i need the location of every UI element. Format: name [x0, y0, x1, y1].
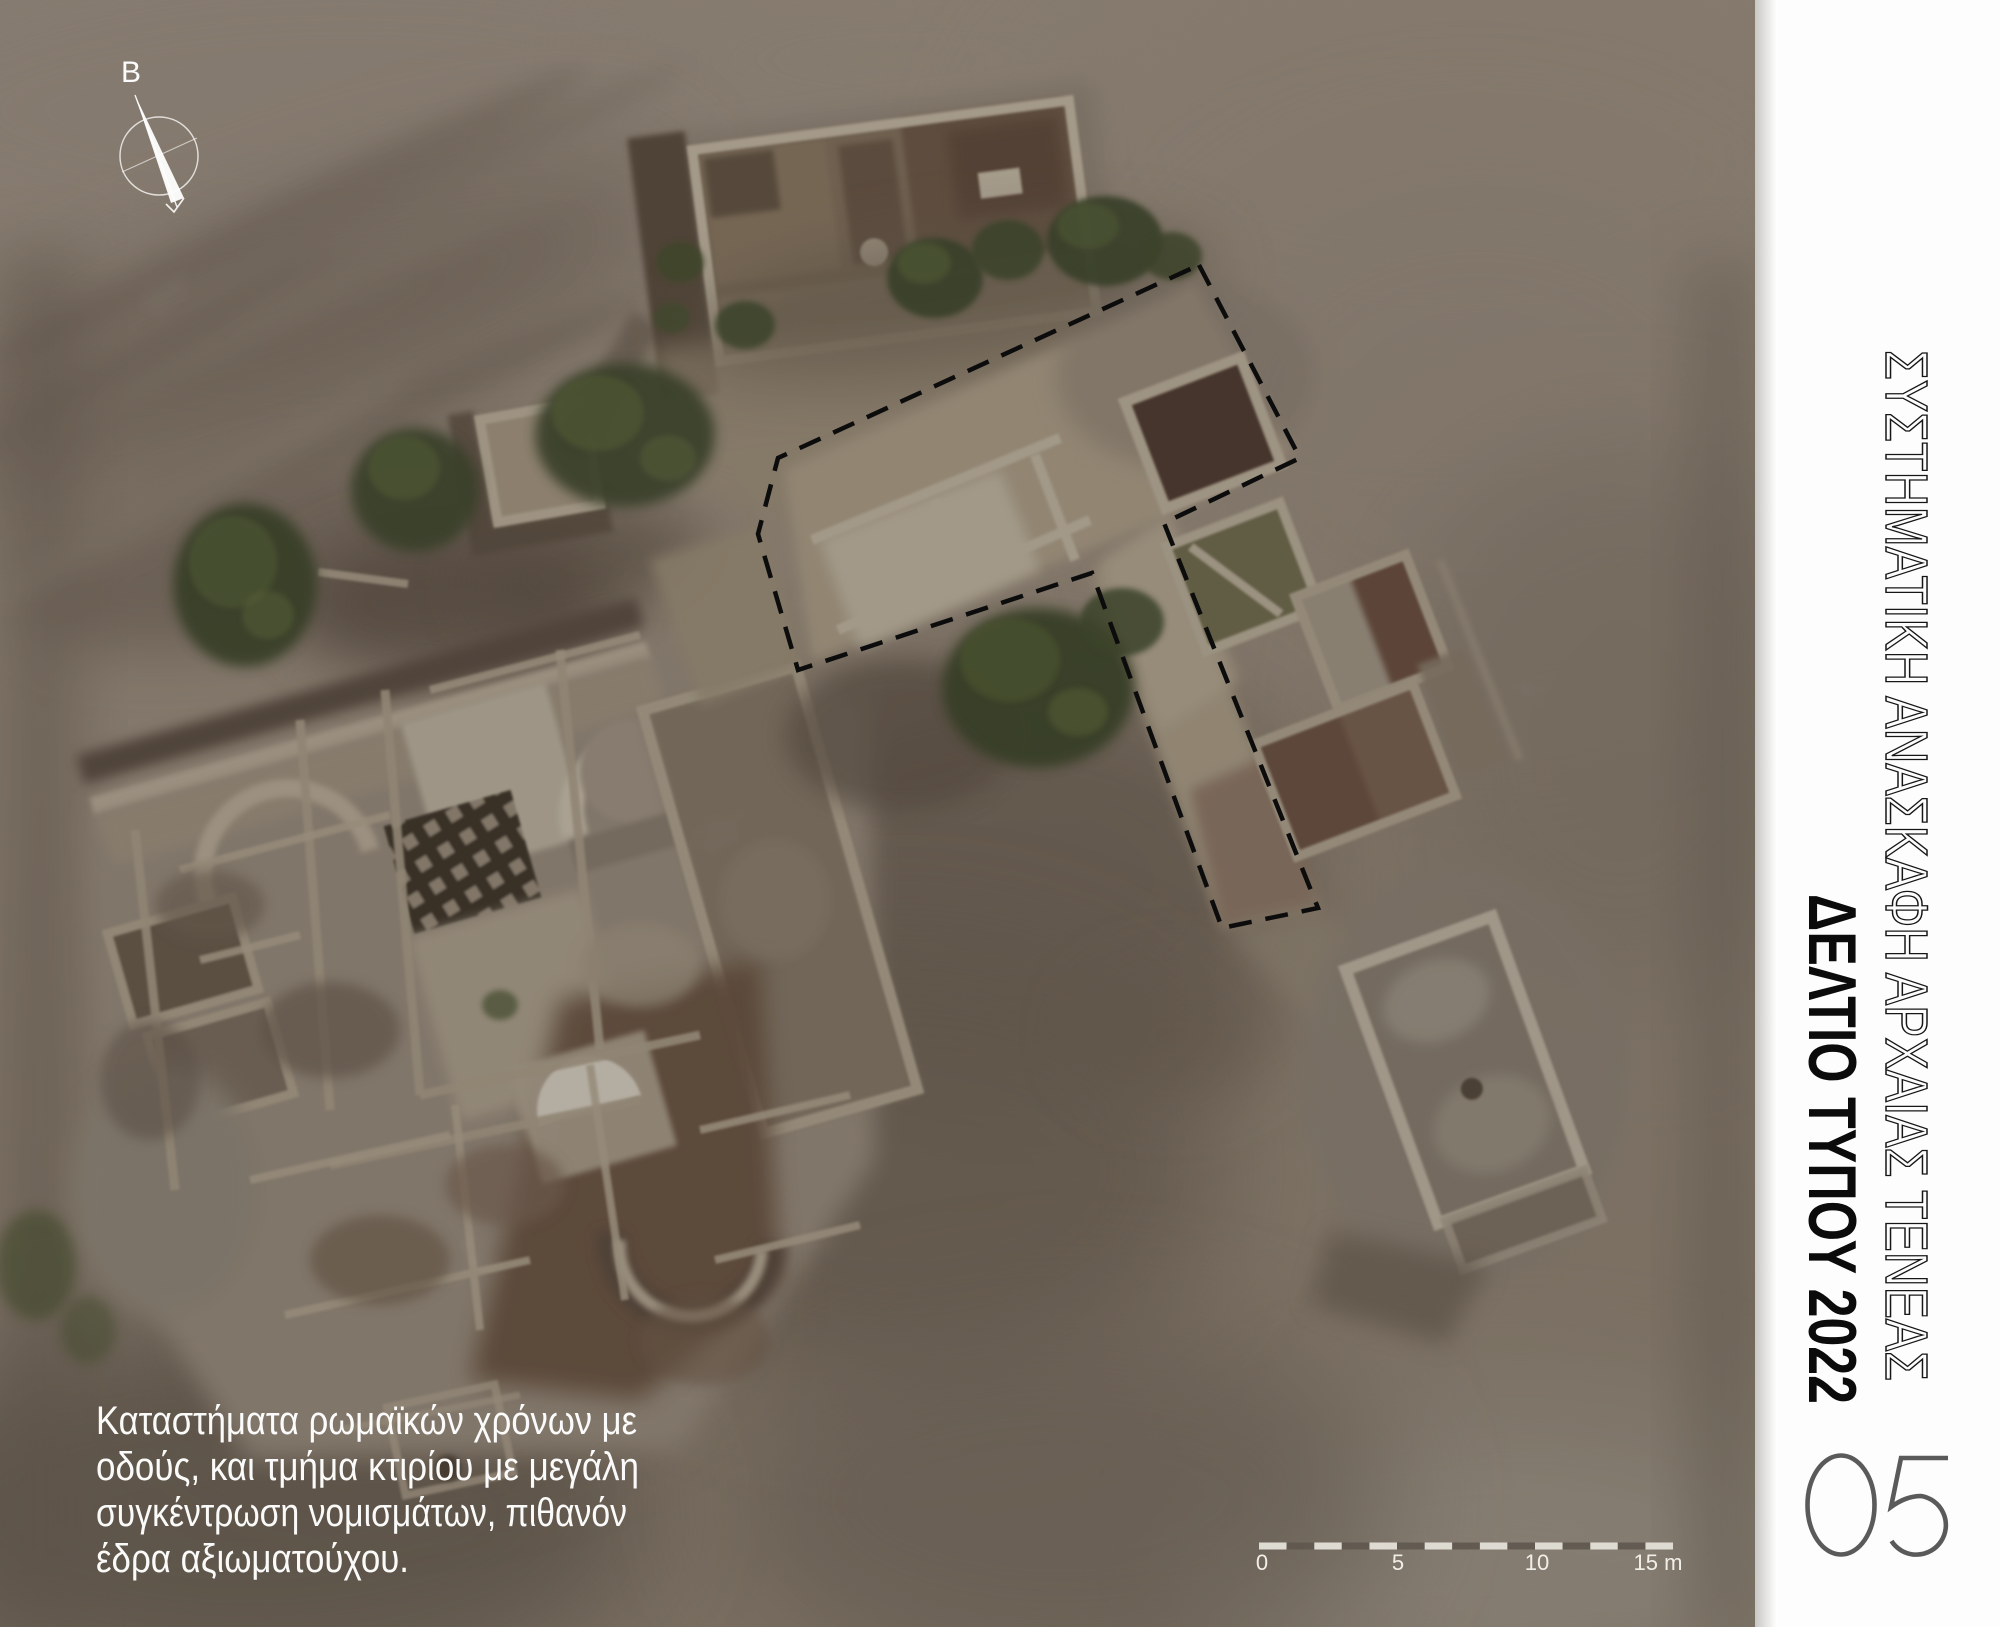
- svg-text:15 m: 15 m: [1634, 1550, 1683, 1575]
- svg-text:B: B: [121, 56, 141, 89]
- svg-text:ΔΕΛΤΙΟ ΤΥΠΟΥ 2022: ΔΕΛΤΙΟ ΤΥΠΟΥ 2022: [1794, 894, 1870, 1404]
- svg-text:ΣΥΣΤΗΜΑΤΙΚΗ ΑΝΑΣΚΑΦΗ ΑΡΧΑΙΑΣ Τ: ΣΥΣΤΗΜΑΤΙΚΗ ΑΝΑΣΚΑΦΗ ΑΡΧΑΙΑΣ ΤΕΝΕΑΣ: [1873, 350, 1939, 1381]
- svg-text:0: 0: [1256, 1550, 1268, 1575]
- svg-text:5: 5: [1392, 1550, 1404, 1575]
- svg-text:έδρα αξιωματούχου.: έδρα αξιωματούχου.: [96, 1537, 409, 1581]
- svg-text:Καταστήματα ρωμαϊκών χρόνων με: Καταστήματα ρωμαϊκών χρόνων με: [96, 1399, 637, 1443]
- svg-text:συγκέντρωση νομισμάτων, πιθανό: συγκέντρωση νομισμάτων, πιθανόν: [96, 1491, 627, 1535]
- svg-text:10: 10: [1525, 1550, 1549, 1575]
- svg-text:οδούς, και τμήμα κτιρίου με με: οδούς, και τμήμα κτιρίου με μεγάλη: [96, 1445, 639, 1489]
